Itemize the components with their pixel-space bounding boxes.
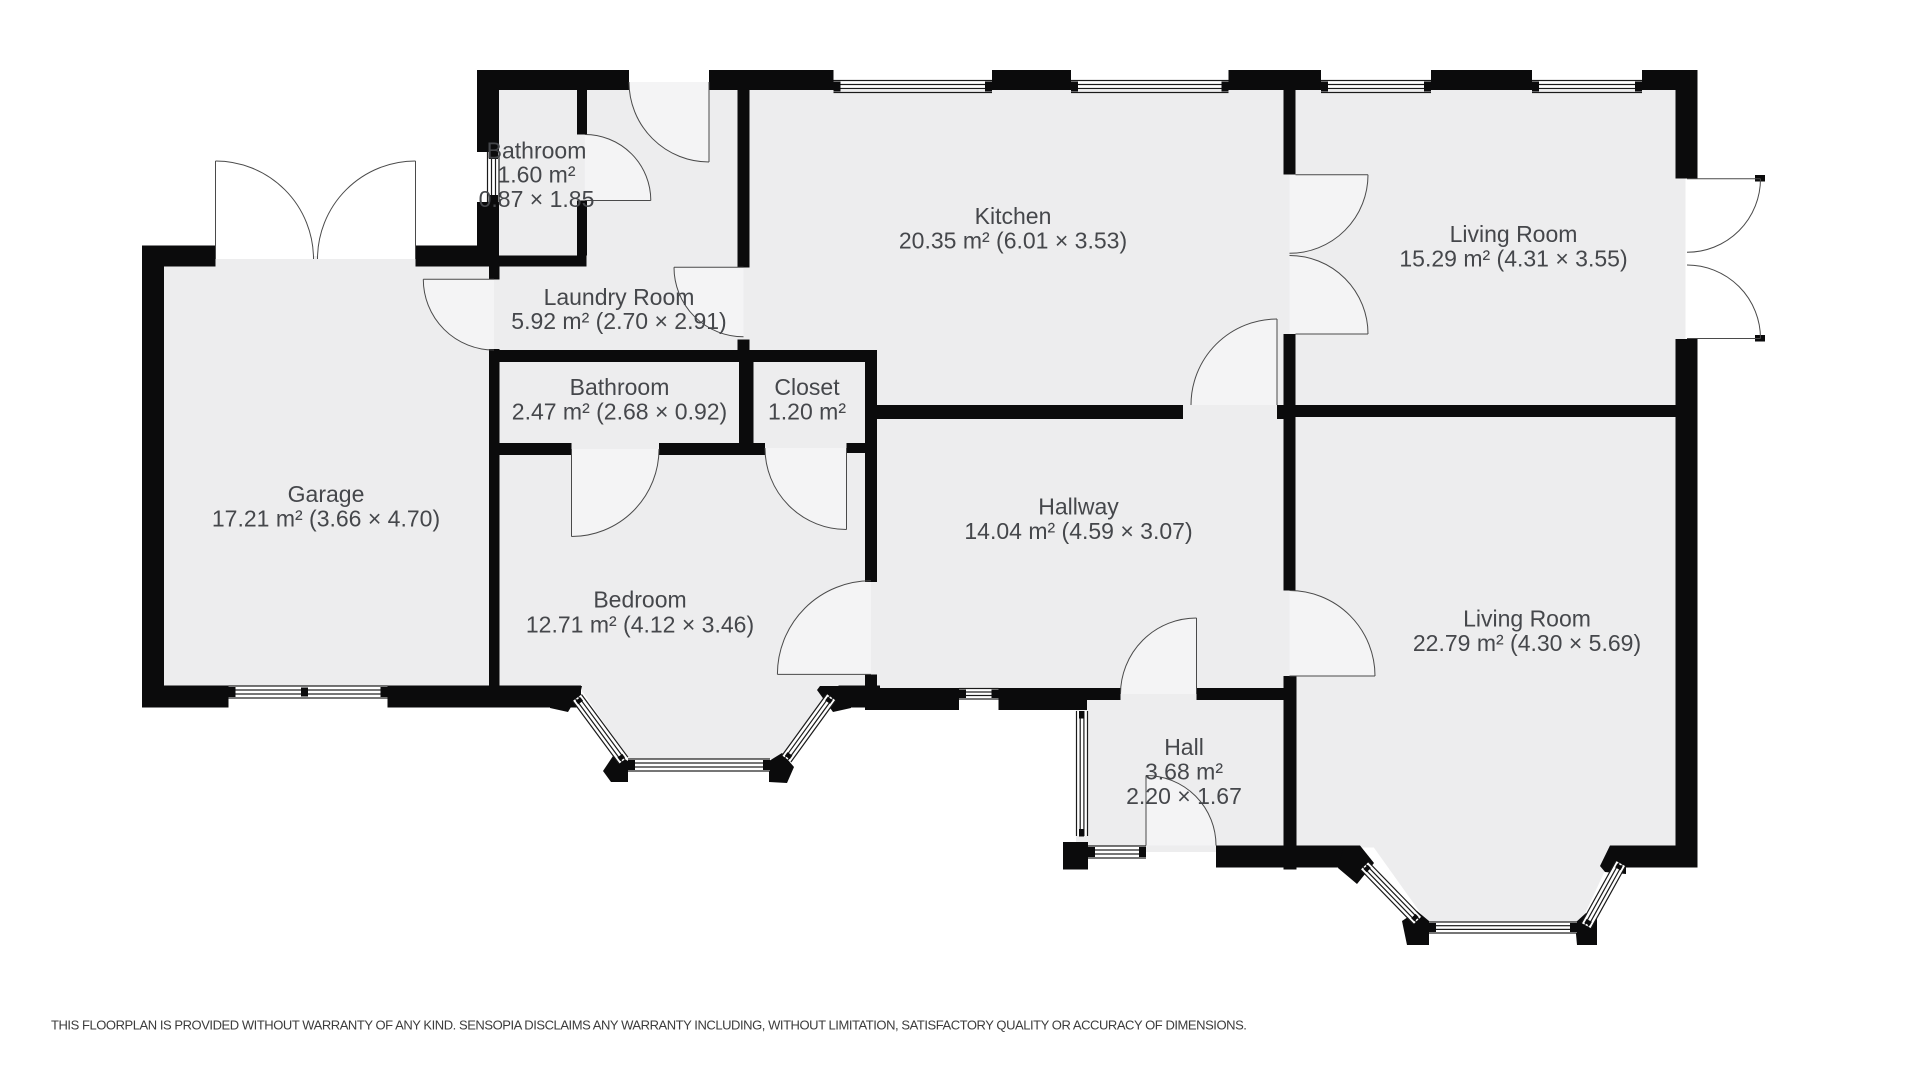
svg-text:Kitchen: Kitchen bbox=[975, 203, 1052, 229]
svg-text:Living Room: Living Room bbox=[1450, 221, 1578, 247]
svg-text:THIS FLOORPLAN IS PROVIDED WIT: THIS FLOORPLAN IS PROVIDED WITHOUT WARRA… bbox=[51, 1018, 1246, 1033]
svg-text:20.35 m² (6.01 × 3.53): 20.35 m² (6.01 × 3.53) bbox=[899, 228, 1127, 254]
svg-text:1.20 m²: 1.20 m² bbox=[768, 399, 846, 425]
svg-text:14.04 m² (4.59 × 3.07): 14.04 m² (4.59 × 3.07) bbox=[964, 518, 1192, 544]
svg-text:17.21 m² (3.66 × 4.70): 17.21 m² (3.66 × 4.70) bbox=[212, 506, 440, 532]
svg-text:Hall: Hall bbox=[1164, 734, 1204, 760]
svg-text:15.29 m² (4.31 × 3.55): 15.29 m² (4.31 × 3.55) bbox=[1399, 246, 1627, 272]
svg-text:Bathroom: Bathroom bbox=[487, 138, 587, 164]
svg-text:Bedroom: Bedroom bbox=[593, 587, 686, 613]
svg-text:2.20 × 1.67: 2.20 × 1.67 bbox=[1126, 783, 1242, 809]
svg-text:3.68 m²: 3.68 m² bbox=[1145, 759, 1223, 785]
svg-text:1.60 m²: 1.60 m² bbox=[498, 162, 576, 188]
svg-text:12.71 m² (4.12 × 3.46): 12.71 m² (4.12 × 3.46) bbox=[526, 612, 754, 638]
svg-text:22.79 m² (4.30 × 5.69): 22.79 m² (4.30 × 5.69) bbox=[1413, 630, 1641, 656]
svg-text:2.47 m² (2.68 × 0.92): 2.47 m² (2.68 × 0.92) bbox=[512, 399, 727, 425]
svg-text:Living Room: Living Room bbox=[1463, 606, 1591, 632]
svg-text:Laundry Room: Laundry Room bbox=[544, 284, 695, 310]
svg-text:5.92 m² (2.70 × 2.91): 5.92 m² (2.70 × 2.91) bbox=[511, 308, 726, 334]
svg-text:Closet: Closet bbox=[774, 374, 840, 400]
svg-text:Bathroom: Bathroom bbox=[570, 374, 670, 400]
svg-text:Garage: Garage bbox=[288, 481, 365, 507]
svg-text:Hallway: Hallway bbox=[1038, 494, 1119, 520]
svg-text:0.87 × 1.85: 0.87 × 1.85 bbox=[479, 186, 595, 212]
